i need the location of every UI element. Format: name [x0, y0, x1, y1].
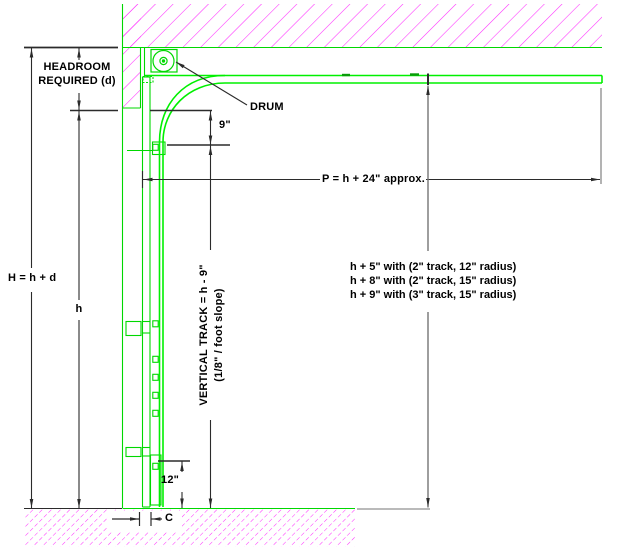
- radius-notes: h + 5" with (2" track, 12" radius) h + 8…: [350, 261, 516, 302]
- radius-note-3: h + 9" with (3" track, 15" radius): [350, 289, 516, 303]
- radius-note-2: h + 8" with (2" track, 15" radius): [350, 275, 516, 289]
- track-offset-label: 9": [219, 118, 231, 132]
- floor-hatch: [24, 510, 355, 547]
- vertical-track-label-line1: VERTICAL TRACK = h - 9": [197, 250, 212, 420]
- headroom-label-line1: HEADROOM: [33, 60, 121, 74]
- door-height-label: h: [72, 302, 86, 316]
- headroom-label-line2: REQUIRED (d): [33, 74, 121, 88]
- wall-and-door-structure: [123, 4, 603, 509]
- bottom-dim-label: 12": [161, 473, 179, 487]
- drum: [151, 50, 177, 73]
- headroom-label: HEADROOM REQUIRED (d): [33, 60, 121, 88]
- vertical-track-label: VERTICAL TRACK = h - 9" (1/8" / foot slo…: [197, 250, 227, 420]
- clearance-label: C: [165, 511, 173, 525]
- total-height-label: H = h + d: [8, 271, 56, 285]
- header-wall-hatch: [122, 4, 141, 108]
- drawing-canvas: HEADROOM REQUIRED (d) DRUM 9" P = h + 24…: [0, 0, 618, 556]
- radius-note-1: h + 5" with (2" track, 12" radius): [350, 261, 516, 275]
- ceiling-hatch: [122, 4, 602, 47]
- vertical-track-label-line2: (1/8" / foot slope): [212, 250, 227, 420]
- drum-label: DRUM: [250, 100, 284, 114]
- projection-label: P = h + 24" approx.: [301, 172, 446, 186]
